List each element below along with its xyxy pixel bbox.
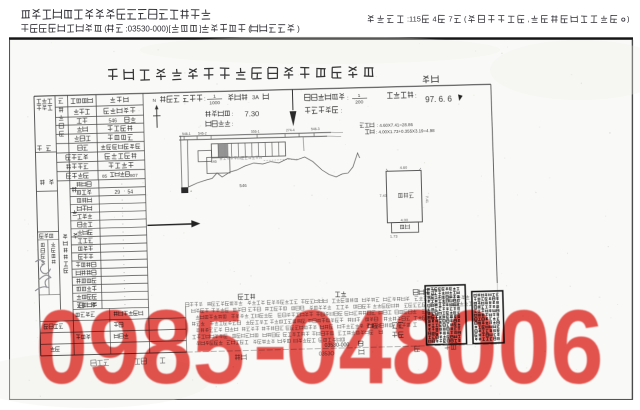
svg-text:7.41: 7.41 xyxy=(379,194,386,198)
svg-text:546-3: 546-3 xyxy=(311,127,320,131)
svg-text:85: 85 xyxy=(102,174,108,179)
svg-text:4: 4 xyxy=(433,15,437,24)
svg-text::: : xyxy=(415,93,417,99)
svg-text::115: :115 xyxy=(407,15,421,24)
svg-text:29: 29 xyxy=(114,190,120,196)
svg-text:048006: 048006 xyxy=(286,289,604,406)
svg-text:1.73: 1.73 xyxy=(390,234,397,238)
svg-text:+: + xyxy=(190,189,192,193)
svg-text:7.30: 7.30 xyxy=(244,109,259,118)
svg-text:3A: 3A xyxy=(252,95,259,101)
svg-text::: : xyxy=(231,112,233,118)
svg-text::: : xyxy=(347,96,349,102)
svg-text:1000: 1000 xyxy=(209,100,220,106)
svg-text:546-1: 546-1 xyxy=(182,132,191,136)
svg-text:274-4: 274-4 xyxy=(286,128,295,132)
svg-text:7.41: 7.41 xyxy=(425,196,429,203)
svg-text:54: 54 xyxy=(127,189,133,195)
svg-text:200: 200 xyxy=(355,99,363,105)
svg-text::03530-000)[: :03530-000)[ xyxy=(125,25,171,34)
svg-text:(: ( xyxy=(104,25,107,34)
svg-text:N: N xyxy=(153,98,156,103)
svg-text:546-2: 546-2 xyxy=(198,131,207,135)
svg-text::: : xyxy=(204,97,206,103)
svg-text:556-1: 556-1 xyxy=(251,130,260,134)
svg-text:546: 546 xyxy=(239,183,247,188)
svg-text:4.00: 4.00 xyxy=(401,218,408,222)
svg-text:,: , xyxy=(528,15,530,24)
svg-text:]: ] xyxy=(199,25,201,34)
svg-text::: : xyxy=(232,122,234,128)
svg-text:807: 807 xyxy=(130,173,138,178)
svg-text:546: 546 xyxy=(109,118,118,124)
svg-text:: 4.60X7.41=28.86: : 4.60X7.41=28.86 xyxy=(377,122,414,128)
svg-text:0985: 0985 xyxy=(36,289,246,406)
svg-text:97. 6. 6: 97. 6. 6 xyxy=(425,95,452,105)
svg-text:4.60: 4.60 xyxy=(400,166,407,170)
svg-text::: : xyxy=(341,108,343,114)
svg-text:): ) xyxy=(297,25,300,34)
svg-text:146: 146 xyxy=(211,160,217,164)
svg-text:7: 7 xyxy=(449,15,453,24)
svg-text:-: - xyxy=(253,287,288,404)
svg-text:): ) xyxy=(627,15,629,24)
